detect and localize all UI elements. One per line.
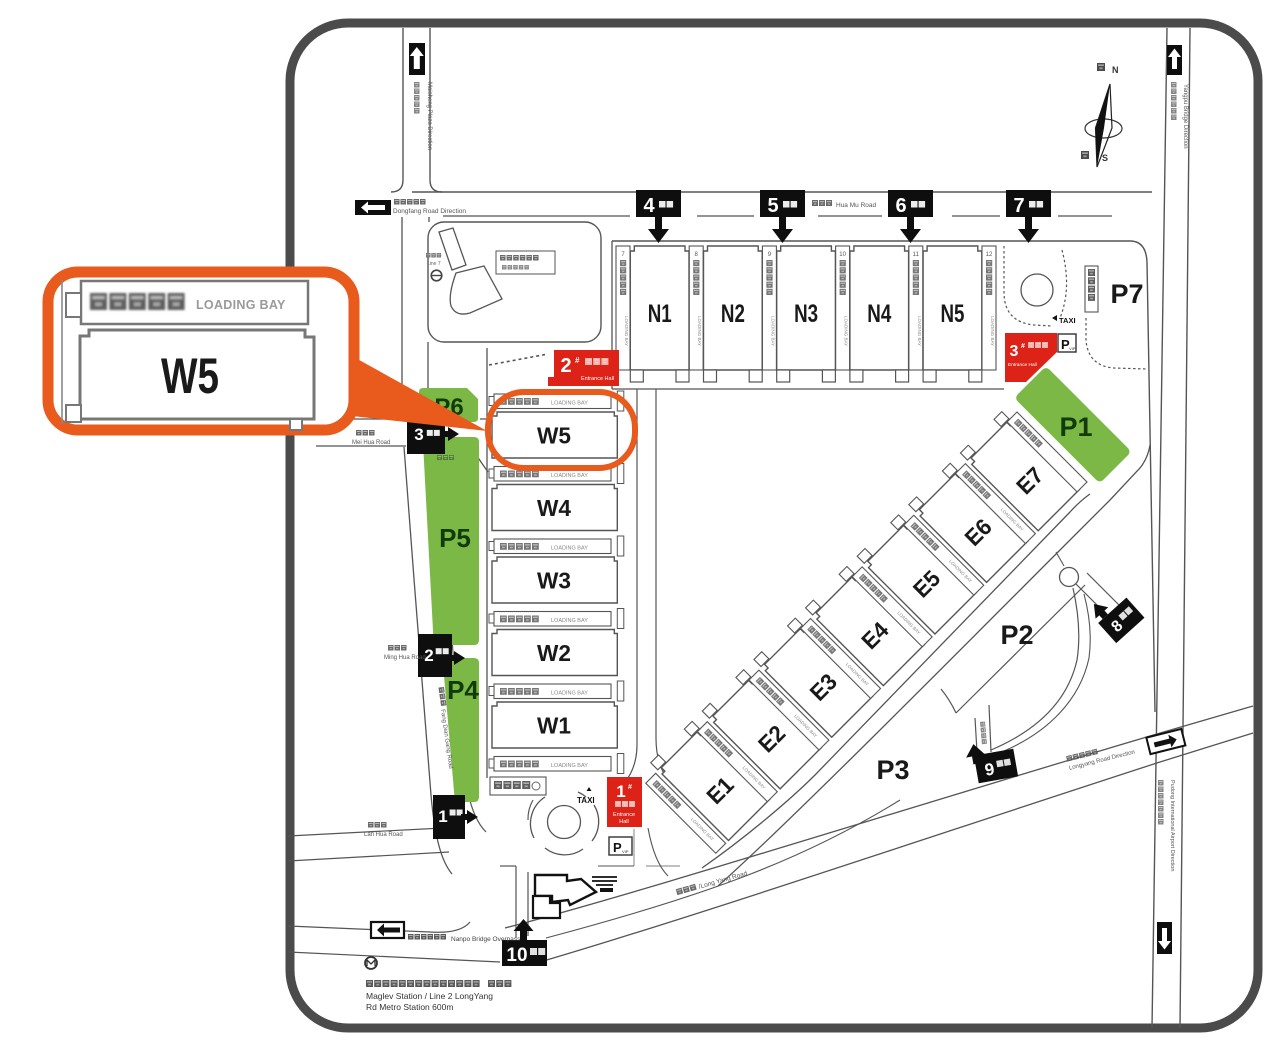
svg-text:Yangpu Bridge Direction: Yangpu Bridge Direction	[1182, 84, 1188, 149]
svg-text:W4: W4	[537, 495, 571, 521]
svg-text:Maisheng Plaza Direction: Maisheng Plaza Direction	[426, 82, 432, 150]
svg-text:W1: W1	[537, 713, 571, 739]
svg-text:Pudong International Airport D: Pudong International Airport Direction	[1169, 780, 1175, 871]
svg-text:P4: P4	[447, 675, 479, 705]
svg-text:LOADING BAY: LOADING BAY	[196, 298, 286, 312]
svg-text:LOADING BAY: LOADING BAY	[551, 473, 588, 479]
svg-text:Rd Metro Station 600m: Rd Metro Station 600m	[366, 1002, 453, 1012]
svg-text:Entrance Hall: Entrance Hall	[1008, 362, 1037, 368]
svg-text:#: #	[628, 784, 632, 791]
svg-text:VIP: VIP	[1069, 346, 1076, 351]
svg-text:Maglev Station / Line 2 LongYa: Maglev Station / Line 2 LongYang	[366, 991, 493, 1001]
svg-text:11: 11	[913, 252, 920, 258]
svg-text:N5: N5	[941, 300, 965, 328]
svg-text:2: 2	[560, 355, 571, 377]
svg-text:N1: N1	[648, 300, 672, 328]
svg-text:LOADING BAY: LOADING BAY	[551, 546, 588, 552]
svg-text:1: 1	[438, 807, 447, 826]
svg-text:Line 7: Line 7	[427, 261, 441, 267]
svg-text:Entrance: Entrance	[613, 812, 635, 818]
svg-text:S: S	[1102, 153, 1108, 163]
svg-text:W5: W5	[537, 423, 571, 449]
svg-text:1: 1	[616, 782, 625, 801]
svg-text:3: 3	[1010, 343, 1019, 360]
svg-text:Entrance Hall: Entrance Hall	[581, 376, 614, 382]
svg-text:LOADING BAY: LOADING BAY	[551, 691, 588, 697]
svg-text:P2: P2	[1000, 620, 1033, 650]
svg-text:4: 4	[643, 195, 655, 217]
svg-text:W3: W3	[537, 568, 571, 594]
svg-text:P5: P5	[439, 523, 471, 553]
svg-text:P1: P1	[1059, 412, 1092, 442]
svg-text:3: 3	[414, 425, 423, 444]
svg-text:7: 7	[1013, 195, 1024, 217]
svg-text:Mei Hua Road: Mei Hua Road	[352, 440, 390, 446]
svg-text:N3: N3	[794, 300, 818, 328]
svg-text:W2: W2	[537, 640, 571, 666]
svg-text:10: 10	[506, 945, 527, 966]
svg-text:LOADING BAY: LOADING BAY	[770, 316, 775, 346]
svg-text:Ming Hua Road: Ming Hua Road	[384, 655, 426, 661]
svg-text:TAXI: TAXI	[1059, 316, 1076, 325]
svg-text:10: 10	[839, 252, 846, 258]
svg-text:TAXI: TAXI	[577, 796, 595, 805]
svg-text:LOADING BAY: LOADING BAY	[624, 316, 629, 346]
svg-text:LOADING BAY: LOADING BAY	[551, 618, 588, 624]
svg-text:P3: P3	[876, 755, 909, 785]
svg-text:P: P	[613, 840, 622, 855]
svg-text:#: #	[575, 356, 580, 365]
svg-text:LOADING BAY: LOADING BAY	[917, 316, 922, 346]
svg-text:P7: P7	[1110, 279, 1143, 309]
svg-text:N4: N4	[867, 300, 891, 328]
svg-text:Nanpo Bridge Overpass: Nanpo Bridge Overpass	[451, 936, 521, 943]
svg-text:Dongfang Road Direction: Dongfang Road Direction	[393, 208, 466, 215]
svg-text:VIP: VIP	[622, 849, 629, 854]
svg-text:LOADING BAY: LOADING BAY	[844, 316, 849, 346]
svg-text:LOADING BAY: LOADING BAY	[990, 316, 995, 346]
svg-text:Lan Hua Road: Lan Hua Road	[364, 832, 403, 838]
svg-text:LOADING BAY: LOADING BAY	[551, 763, 588, 769]
svg-text:5: 5	[767, 195, 778, 217]
svg-text:W5: W5	[161, 348, 219, 404]
svg-text:12: 12	[986, 252, 993, 258]
svg-text:N2: N2	[721, 300, 745, 328]
svg-text:Hall: Hall	[619, 819, 628, 825]
svg-text:LOADING BAY: LOADING BAY	[697, 316, 702, 346]
svg-text:#: #	[1021, 343, 1025, 350]
svg-text:6: 6	[895, 195, 906, 217]
svg-text:Hua Mu Road: Hua Mu Road	[836, 202, 876, 209]
svg-text:N: N	[1112, 65, 1119, 75]
svg-text:LOADING BAY: LOADING BAY	[551, 401, 588, 407]
